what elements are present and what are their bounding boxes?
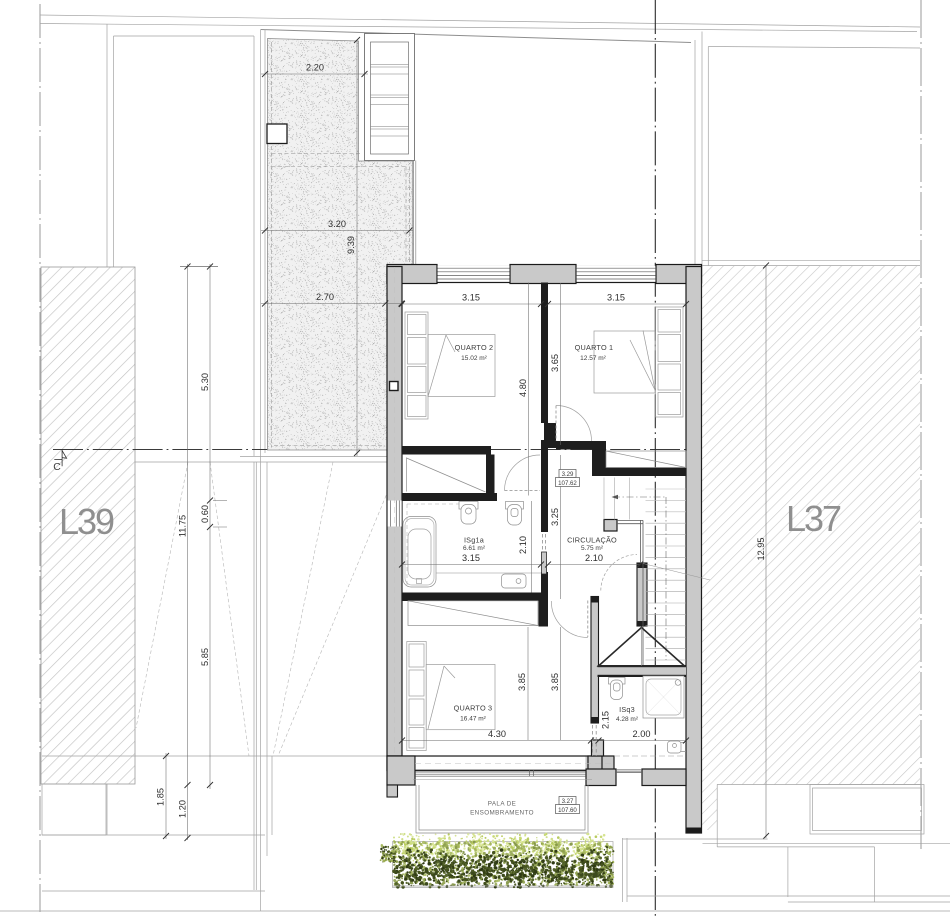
svg-text:L39: L39 <box>59 501 114 542</box>
svg-text:5.30: 5.30 <box>200 373 210 391</box>
svg-text:L37: L37 <box>786 498 841 539</box>
svg-text:0.60: 0.60 <box>200 505 210 523</box>
svg-text:3.29: 3.29 <box>562 471 574 478</box>
svg-text:9.39: 9.39 <box>346 236 356 254</box>
svg-text:3.20: 3.20 <box>328 219 346 229</box>
svg-text:3.15: 3.15 <box>462 293 480 303</box>
svg-text:ENSOMBRAMENTO: ENSOMBRAMENTO <box>470 810 534 817</box>
svg-text:3.85: 3.85 <box>517 673 527 691</box>
svg-text:15.02 m²: 15.02 m² <box>461 355 487 362</box>
svg-text:1.20: 1.20 <box>178 800 188 818</box>
svg-text:4.80: 4.80 <box>518 379 528 397</box>
svg-text:QUARTO 3: QUARTO 3 <box>454 704 493 713</box>
svg-text:2.20: 2.20 <box>306 63 324 73</box>
svg-text:ISq3: ISq3 <box>619 705 635 714</box>
svg-text:11.75: 11.75 <box>178 515 188 537</box>
svg-text:QUARTO 2: QUARTO 2 <box>455 343 494 352</box>
svg-text:12.95: 12.95 <box>756 538 766 561</box>
svg-text:2.70: 2.70 <box>316 292 334 302</box>
svg-text:4.30: 4.30 <box>488 729 506 739</box>
svg-text:C: C <box>53 461 61 473</box>
svg-text:107.60: 107.60 <box>558 807 577 814</box>
svg-text:3.25: 3.25 <box>550 508 560 526</box>
svg-text:107.62: 107.62 <box>558 480 577 487</box>
svg-text:3.15: 3.15 <box>607 293 625 303</box>
svg-text:2.00: 2.00 <box>633 729 651 739</box>
svg-text:12.57 m²: 12.57 m² <box>580 355 606 362</box>
svg-text:16.47 m²: 16.47 m² <box>460 716 486 723</box>
svg-text:4.28 m²: 4.28 m² <box>616 716 639 723</box>
svg-text:CIRCULAÇÃO: CIRCULAÇÃO <box>567 536 617 545</box>
svg-text:3.65: 3.65 <box>550 354 560 372</box>
svg-text:3.15: 3.15 <box>462 553 480 563</box>
svg-text:2.15: 2.15 <box>601 711 611 729</box>
svg-text:6.61 m²: 6.61 m² <box>463 545 486 552</box>
svg-text:2.10: 2.10 <box>518 536 528 554</box>
svg-text:3.85: 3.85 <box>550 673 560 691</box>
svg-text:QUARTO 1: QUARTO 1 <box>575 343 614 352</box>
svg-text:1.85: 1.85 <box>156 788 166 806</box>
svg-text:2.10: 2.10 <box>585 553 603 563</box>
svg-text:3.27: 3.27 <box>562 798 574 805</box>
svg-text:5.75 m²: 5.75 m² <box>581 545 604 552</box>
svg-text:PALA DE: PALA DE <box>488 801 517 808</box>
svg-text:5.85: 5.85 <box>200 648 210 666</box>
svg-text:ISg1a: ISg1a <box>464 536 485 545</box>
